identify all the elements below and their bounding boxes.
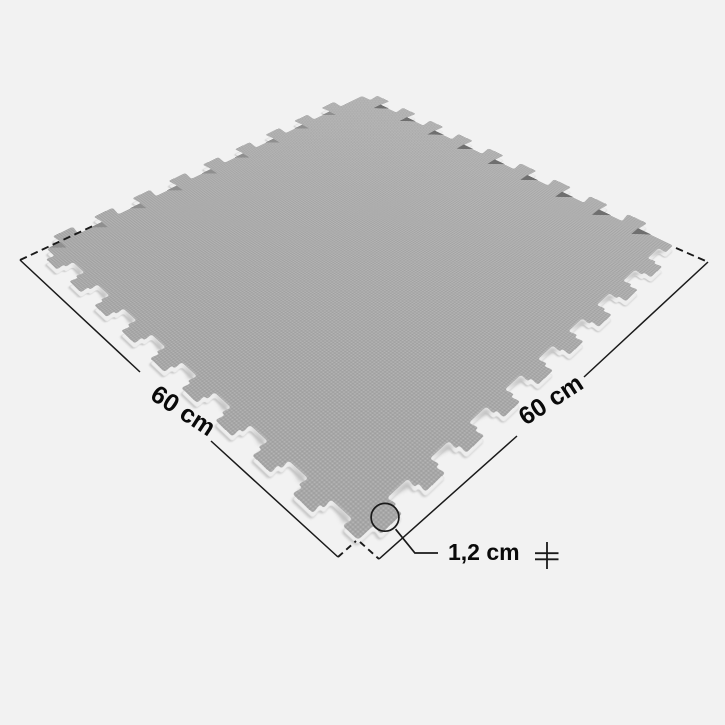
svg-text:1,2 cm: 1,2 cm xyxy=(448,539,520,565)
svg-text:60 cm: 60 cm xyxy=(514,369,589,431)
svg-text:60 cm: 60 cm xyxy=(146,380,221,442)
